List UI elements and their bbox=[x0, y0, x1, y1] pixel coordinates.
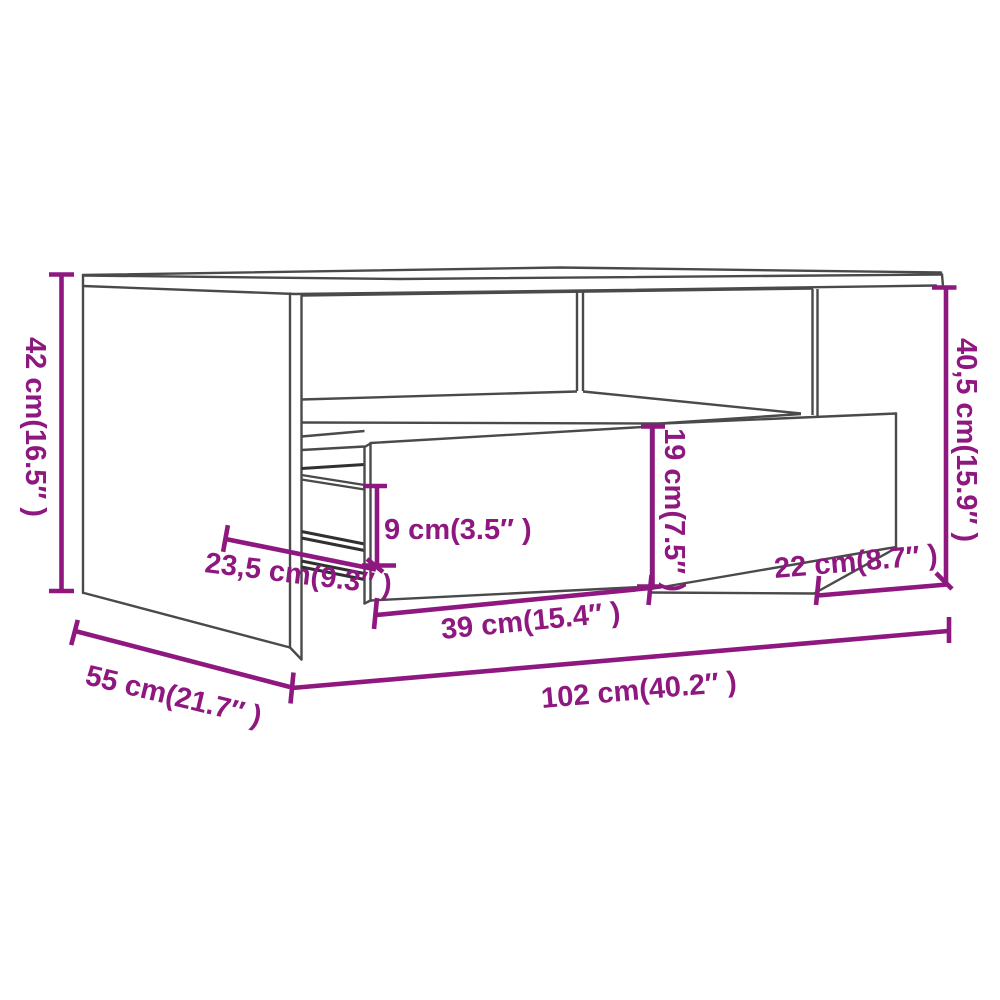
svg-text:42 cm(16.5″ ): 42 cm(16.5″ ) bbox=[19, 337, 51, 517]
svg-text:9 cm(3.5″ ): 9 cm(3.5″ ) bbox=[384, 514, 532, 546]
svg-text:102 cm(40.2″ ): 102 cm(40.2″ ) bbox=[540, 666, 738, 715]
svg-text:55 cm(21.7″ ): 55 cm(21.7″ ) bbox=[82, 660, 264, 733]
svg-text:22 cm(8.7″ ): 22 cm(8.7″ ) bbox=[773, 539, 939, 585]
svg-text:19 cm(7.5″ ): 19 cm(7.5″ ) bbox=[658, 428, 690, 592]
svg-text:40,5 cm(15.9″ ): 40,5 cm(15.9″ ) bbox=[950, 338, 982, 542]
